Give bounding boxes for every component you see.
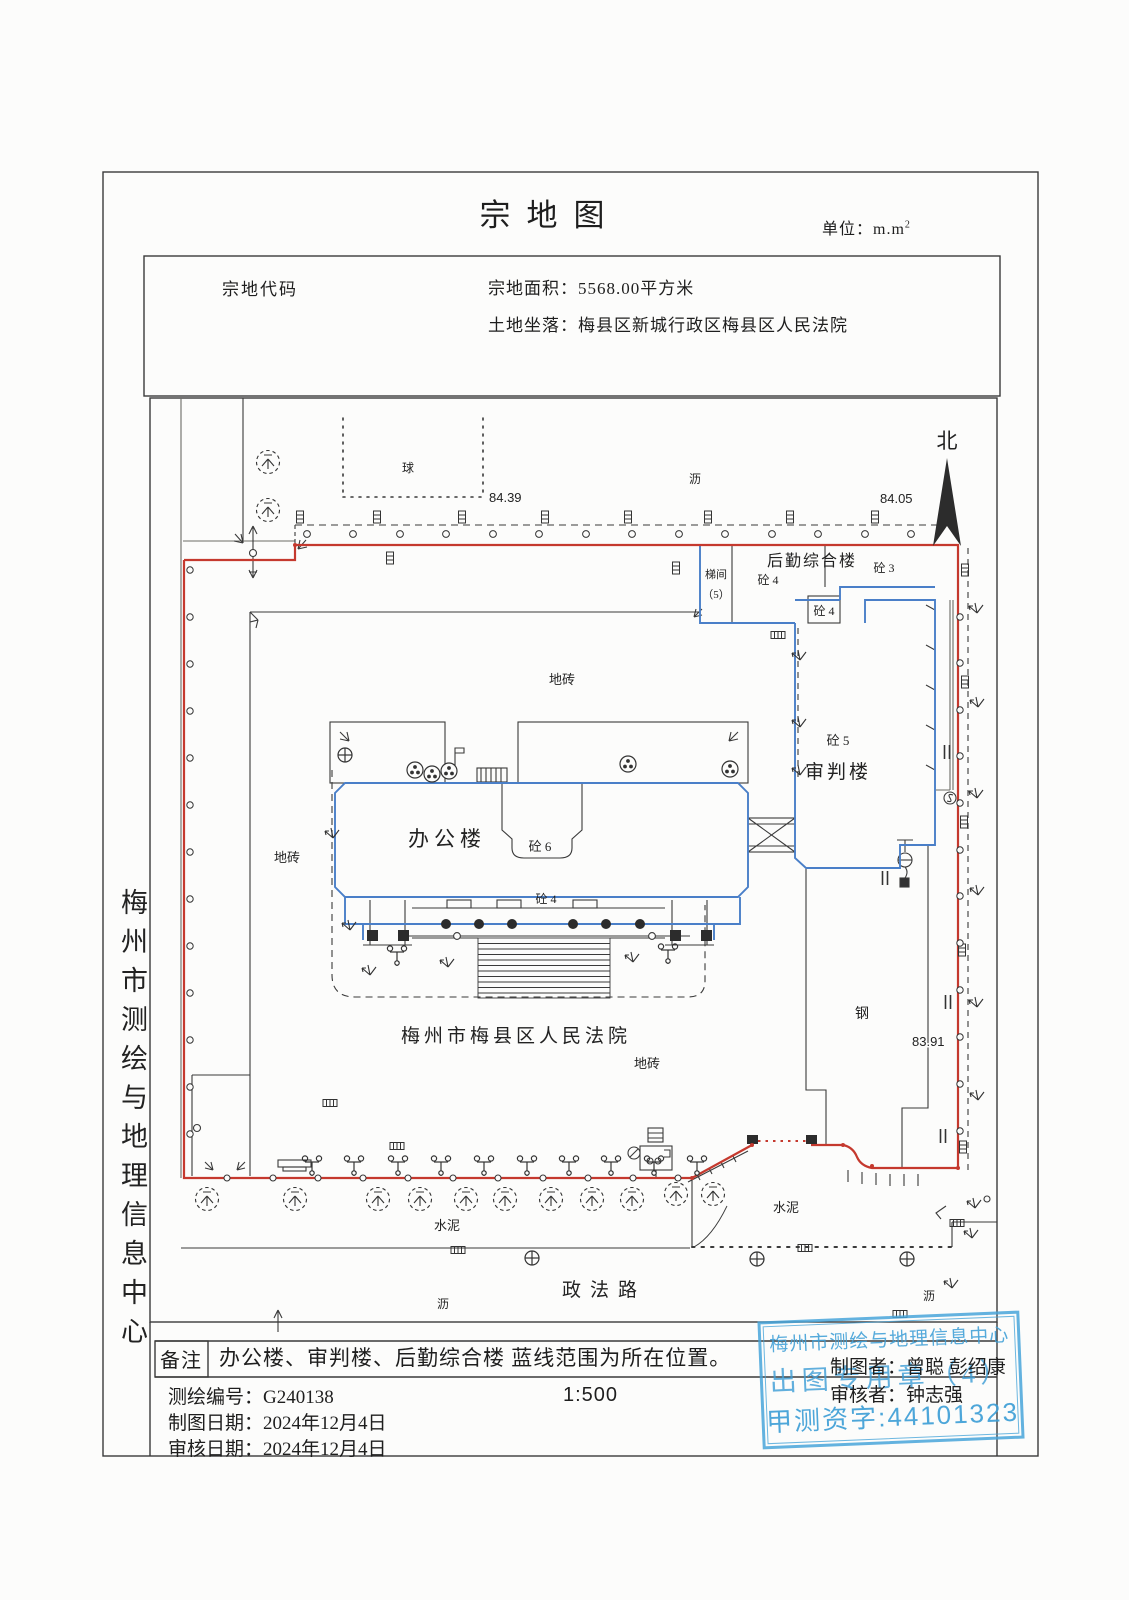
survey-number: 测绘编号：G240138 bbox=[168, 1382, 334, 1409]
page-border bbox=[103, 172, 1038, 1456]
court-name-label: 梅州市梅县区人民法院 bbox=[401, 1025, 631, 1047]
shrub-symbols bbox=[325, 603, 984, 1288]
c3-label: 砼 3 bbox=[873, 561, 894, 575]
fence-symbols bbox=[297, 511, 969, 1153]
north-arrow bbox=[933, 458, 961, 546]
steel-label: 钢 bbox=[855, 1006, 869, 1022]
utility-symbols bbox=[323, 632, 964, 1318]
parcel-map-document: 北 球 84.39 84.05 沥 后勤综合楼 砼 3 砼 4 梯间 （5） 砼… bbox=[0, 0, 1129, 1600]
cement-label-2: 水泥 bbox=[773, 1200, 799, 1215]
c5-label: 砼 5 bbox=[827, 733, 850, 748]
map-scale: 1:500 bbox=[563, 1384, 618, 1407]
road-name-label: 政法路 bbox=[562, 1279, 646, 1301]
fence-post-circles bbox=[187, 531, 963, 1181]
parcel-boundary-red bbox=[184, 543, 960, 1180]
stairwell-number: （5） bbox=[702, 588, 730, 601]
c4-label-b: 砼 4 bbox=[813, 604, 834, 618]
org-vertical-title: 梅州市测绘与地理信息中心 bbox=[106, 888, 152, 1378]
stairwell-label: 梯间 bbox=[705, 568, 727, 581]
unit-text: 单位：m.m bbox=[822, 221, 905, 238]
ball-court-label: 球 bbox=[402, 461, 414, 475]
drafter-name: 制图者：曾聪 彭绍康 bbox=[830, 1352, 1006, 1379]
tile-label-1: 地砖 bbox=[549, 672, 575, 687]
parcel-area-value: 宗地面积：5568.00平方米 bbox=[488, 274, 694, 299]
remark-label: 备注 bbox=[160, 1344, 202, 1373]
c6-label: 砼 6 bbox=[529, 839, 552, 854]
reviewer-name: 审核者：钟志强 bbox=[830, 1380, 963, 1407]
trial-building-label: 审判楼 bbox=[805, 761, 871, 783]
parcel-code-label: 宗地代码 bbox=[222, 275, 298, 300]
parcel-location-value: 土地坐落：梅县区新城行政区梅县区人民法院 bbox=[488, 311, 848, 336]
elevation-84-39: 84.39 bbox=[489, 490, 522, 505]
unit-superscript: 2 bbox=[905, 220, 911, 231]
c4-label-a: 砼 4 bbox=[757, 573, 778, 587]
asphalt-top-label: 沥 bbox=[689, 472, 701, 486]
asphalt-bottom-label-1: 沥 bbox=[437, 1297, 449, 1311]
logistics-building-label: 后勤综合楼 bbox=[767, 552, 857, 570]
elevation-84-05: 84.05 bbox=[880, 491, 913, 506]
office-building-label: 办公楼 bbox=[408, 827, 486, 851]
unit-label: 单位：m.m2 bbox=[822, 215, 911, 239]
c4-label-porch: 砼 4 bbox=[535, 892, 556, 906]
review-date: 审核日期：2024年12月4日 bbox=[168, 1434, 387, 1461]
remark-text: 办公楼、审判楼、后勤综合楼 蓝线范围为所在位置。 bbox=[219, 1342, 731, 1372]
tile-label-3: 地砖 bbox=[634, 1056, 660, 1071]
drawing-date: 制图日期：2024年12月4日 bbox=[168, 1408, 387, 1435]
elevation-83-91: 83.91 bbox=[912, 1034, 945, 1049]
asphalt-bottom-label-2: 沥 bbox=[923, 1289, 935, 1303]
tile-label-2: 地砖 bbox=[274, 850, 300, 865]
north-label: 北 bbox=[937, 429, 958, 453]
cement-label-1: 水泥 bbox=[434, 1218, 460, 1233]
